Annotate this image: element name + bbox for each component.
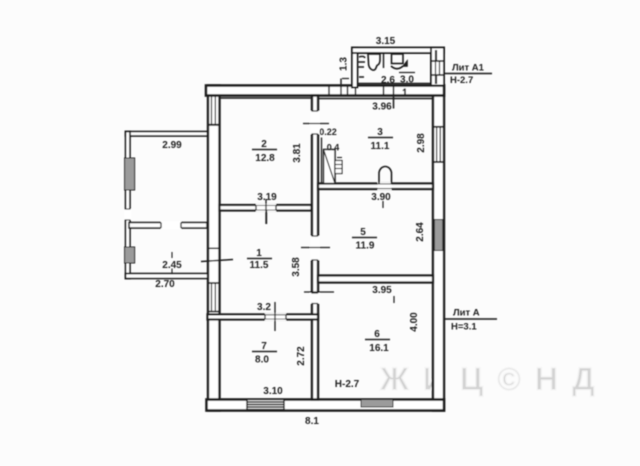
svg-text:2.6: 2.6	[381, 75, 395, 86]
svg-text:0.4: 0.4	[327, 143, 340, 153]
svg-text:3.81: 3.81	[292, 143, 303, 163]
svg-text:Н=3.1: Н=3.1	[451, 322, 477, 333]
svg-text:3.90: 3.90	[371, 192, 391, 203]
svg-text:0.22: 0.22	[319, 127, 337, 137]
svg-text:8.1: 8.1	[305, 416, 319, 427]
svg-text:8.0: 8.0	[255, 355, 269, 366]
svg-text:3.19: 3.19	[257, 192, 277, 203]
svg-text:3.96: 3.96	[372, 102, 392, 113]
svg-text:12.8: 12.8	[255, 153, 275, 164]
svg-text:Лит А: Лит А	[453, 308, 480, 319]
svg-text:11.1: 11.1	[371, 141, 390, 152]
svg-text:3.58: 3.58	[291, 257, 302, 277]
svg-text:3.2: 3.2	[257, 302, 271, 313]
svg-text:2.70: 2.70	[155, 279, 175, 290]
svg-text:Лит А1: Лит А1	[452, 63, 485, 74]
svg-text:4.00: 4.00	[409, 312, 420, 332]
svg-text:3: 3	[377, 127, 383, 138]
svg-text:7: 7	[261, 341, 267, 352]
svg-text:2.99: 2.99	[162, 140, 182, 151]
svg-text:2.64: 2.64	[415, 222, 426, 242]
svg-text:3.10: 3.10	[263, 386, 283, 397]
svg-text:Н-2.7: Н-2.7	[450, 75, 473, 86]
svg-text:16.1: 16.1	[369, 343, 389, 354]
svg-text:3.15: 3.15	[376, 36, 396, 47]
svg-text:3.0: 3.0	[400, 75, 414, 86]
svg-text:2.98: 2.98	[416, 133, 427, 153]
svg-text:11.5: 11.5	[250, 260, 269, 271]
svg-text:1: 1	[256, 248, 262, 259]
svg-text:5: 5	[360, 227, 366, 238]
svg-text:ЖИЦ©НД: ЖИЦ©НД	[379, 361, 609, 397]
svg-text:2: 2	[261, 139, 267, 150]
svg-text:1.3: 1.3	[339, 57, 350, 71]
svg-text:6: 6	[374, 329, 380, 340]
svg-text:11.9: 11.9	[356, 241, 375, 252]
svg-text:2.72: 2.72	[296, 346, 307, 366]
svg-text:Н-2.7: Н-2.7	[335, 379, 360, 390]
svg-text:3.95: 3.95	[372, 285, 392, 296]
